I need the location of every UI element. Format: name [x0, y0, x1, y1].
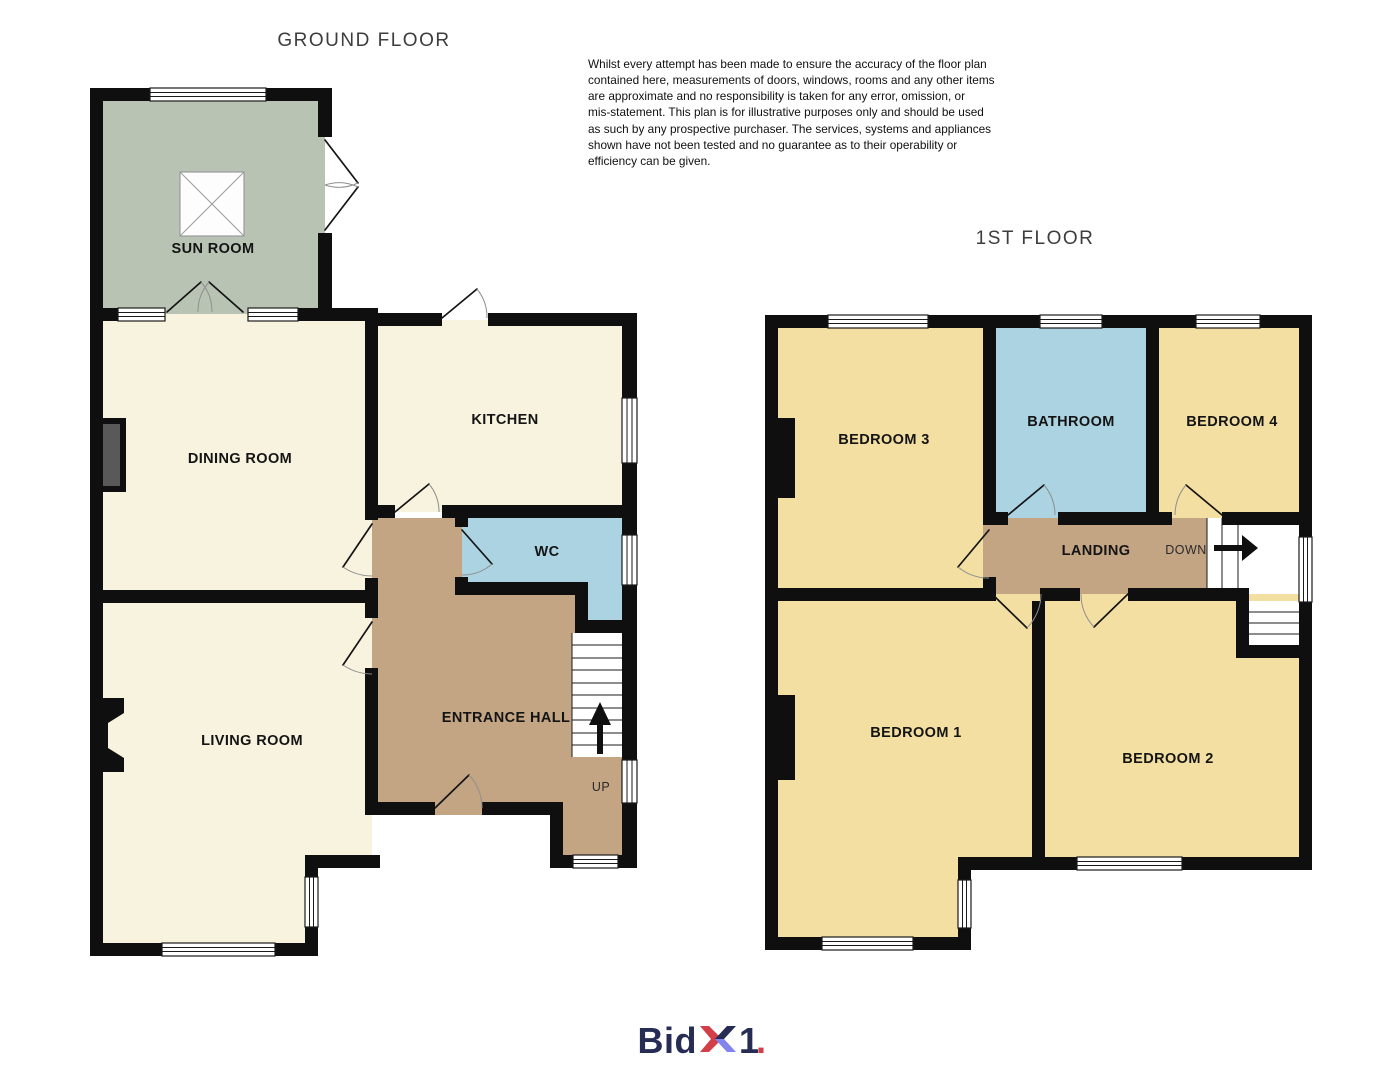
label-down: DOWN	[1165, 543, 1207, 557]
logo-text-bid: Bid	[638, 1020, 698, 1061]
floorplan-page: GROUND FLOOR SUN ROOM DINING ROOM KITCHE…	[0, 0, 1400, 1086]
label-bedroom2: BEDROOM 2	[1122, 751, 1213, 767]
window-sun-room-top	[150, 88, 266, 101]
label-sun-room: SUN ROOM	[172, 241, 255, 257]
window-bathroom-top	[1040, 315, 1102, 328]
staircase-up	[572, 633, 622, 757]
bedroom3-chimney-breast	[778, 418, 795, 498]
label-entrance-hall: ENTRANCE HALL	[442, 710, 570, 726]
door-kitchen-exterior	[442, 289, 487, 318]
window-hall-right	[622, 760, 637, 803]
door-sun-room-french	[325, 140, 358, 230]
logo-x-right-top-arm-icon	[715, 1026, 736, 1039]
window-stairwell-right	[1299, 537, 1312, 602]
disclaimer-line: Whilst every attempt has been made to en…	[588, 57, 987, 71]
disclaimer-line: contained here, measurements of doors, w…	[588, 73, 995, 87]
window-sun-room-bottom-right	[248, 308, 298, 321]
window-wc-right	[622, 535, 637, 585]
window-sun-room-bottom-left	[118, 308, 165, 321]
label-kitchen: KITCHEN	[471, 412, 538, 428]
dining-chimney-breast	[98, 418, 126, 492]
first-floor-title: 1ST FLOOR	[976, 228, 1095, 249]
bedroom1-floor	[778, 594, 1038, 943]
first-floor-plan: 1ST FLOOR BEDROOM 3 BATHROOM BEDROOM 4 L…	[765, 228, 1312, 950]
label-dining-room: DINING ROOM	[188, 451, 292, 467]
label-bedroom1: BEDROOM 1	[870, 725, 961, 741]
logo-x-right-bottom-arm-icon	[715, 1039, 736, 1052]
label-landing: LANDING	[1062, 543, 1131, 559]
label-bedroom3: BEDROOM 3	[838, 432, 929, 448]
window-bedroom3-top	[828, 315, 928, 328]
disclaimer-line: mis-statement. This plan is for illustra…	[588, 105, 984, 119]
living-room-fireplace	[100, 698, 124, 772]
label-wc: WC	[535, 544, 560, 560]
ground-floor-title: GROUND FLOOR	[277, 30, 450, 51]
label-up: UP	[592, 780, 610, 794]
disclaimer-line: as such by any prospective purchaser. Th…	[588, 122, 991, 136]
label-bedroom4: BEDROOM 4	[1186, 414, 1277, 430]
window-bedroom2-bottom	[1077, 857, 1182, 870]
disclaimer-line: are approximate and no responsibility is…	[588, 89, 965, 103]
window-porch-threshold	[573, 855, 618, 868]
label-bathroom: BATHROOM	[1027, 414, 1115, 430]
label-living-room: LIVING ROOM	[201, 733, 303, 749]
window-bedroom1-side	[958, 880, 971, 928]
window-living-bottom	[162, 943, 275, 956]
bedroom1-chimney-breast	[778, 695, 795, 780]
window-bedroom4-top	[1196, 315, 1260, 328]
sun-room-skylight-icon	[180, 172, 244, 236]
window-kitchen-right	[622, 398, 637, 463]
bedroom3-floor	[778, 328, 996, 594]
bidx1-logo: Bid 1 .	[638, 1020, 767, 1061]
disclaimer-line: shown have not been tested and no guaran…	[588, 138, 957, 152]
window-living-side	[305, 877, 318, 927]
living-room-floor	[98, 598, 372, 943]
logo-dot: .	[756, 1020, 767, 1061]
window-bedroom1-bottom	[822, 937, 913, 950]
ground-floor-plan: GROUND FLOOR SUN ROOM DINING ROOM KITCHE…	[90, 30, 637, 956]
disclaimer-text: Whilst every attempt has been made to en…	[588, 57, 995, 168]
floorplan-canvas: GROUND FLOOR SUN ROOM DINING ROOM KITCHE…	[0, 0, 1400, 1086]
disclaimer-line: efficiency can be given.	[588, 154, 710, 168]
